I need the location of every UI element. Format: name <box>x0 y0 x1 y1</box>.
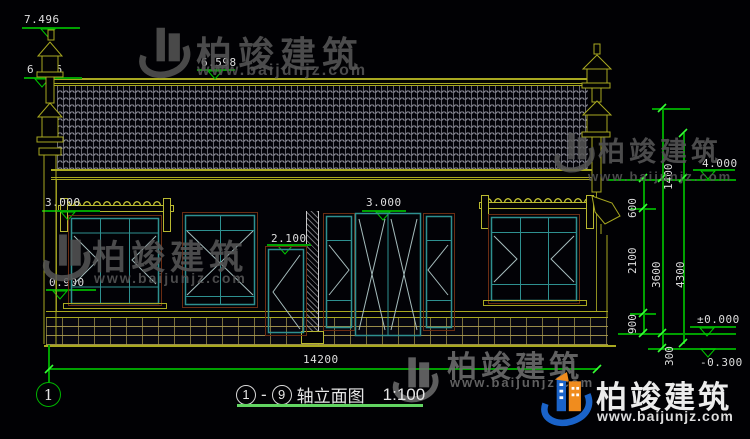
elevation-triangle <box>52 290 68 300</box>
watermark-text: 柏竣建筑 <box>598 130 722 169</box>
title-scale: 1:100 <box>383 385 426 405</box>
roof-tile-field <box>57 86 588 170</box>
axis-bubble-label: 1 <box>44 386 54 404</box>
title-separator: - <box>261 385 267 405</box>
title-axis-end: 9 <box>272 385 292 405</box>
elevation-triangle <box>375 211 391 221</box>
roof-eave-band <box>51 169 593 180</box>
elevation-gable-left: 6.156 <box>27 63 63 76</box>
elevation-triangle <box>699 327 715 337</box>
elevation-below-ground: -0.300 <box>700 356 743 369</box>
downpipe-shoe <box>301 331 324 344</box>
elevation-triangle <box>277 245 293 255</box>
axis-line-1 <box>48 345 50 383</box>
title-underline <box>237 404 423 407</box>
elevation-triangle <box>40 28 56 38</box>
axis-bubble-1: 1 <box>36 382 61 407</box>
dim-total-width: 14200 <box>303 353 339 366</box>
left-awning-end-plate <box>163 198 171 232</box>
cad-elevation-drawing: 7.496 6.156 6.598 3.000 0.900 2.100 3.00… <box>0 0 750 439</box>
right-dim-chain-inner <box>643 178 645 334</box>
right-awning-end-plate <box>481 195 489 229</box>
wainscot-top-band <box>46 311 608 318</box>
elevation-ground: ±0.000 <box>697 313 740 326</box>
elevation-entrance: 3.000 <box>366 196 402 209</box>
dim-900: 900 <box>626 314 639 334</box>
dim-300: 300 <box>663 346 676 366</box>
right-awning-end-plate <box>586 195 594 229</box>
right-awning-tiles <box>483 193 595 202</box>
dim-stub <box>652 108 690 110</box>
right-awning-board <box>479 202 599 209</box>
watermark-url: www.baijunjz.com <box>197 62 367 80</box>
dim-4300: 4300 <box>674 262 687 289</box>
elevation-triangle <box>60 211 76 221</box>
watermark-logo-icon <box>136 22 192 82</box>
rain-downpipe <box>306 211 319 332</box>
elevation-ridge-left: 7.496 <box>24 13 60 26</box>
brand-url: www.baijunjz.com <box>597 408 734 424</box>
watermark-logo-icon <box>40 226 92 288</box>
level-line-minus300 <box>648 348 736 350</box>
dim-600: 600 <box>626 198 639 218</box>
title-axis-start: 1 <box>236 385 256 405</box>
elevation-triangle <box>34 78 50 88</box>
dim-2100: 2100 <box>626 248 639 275</box>
brand-logo-icon <box>538 368 594 432</box>
watermark-url: www.baijunjz.com <box>94 270 247 286</box>
watermark-url: www.baijunjz.com <box>588 169 732 184</box>
elevation-mark-line <box>24 77 82 79</box>
brick-wainscot <box>46 318 608 345</box>
dim-3600: 3600 <box>650 262 663 289</box>
elevation-awning-left: 3.000 <box>45 196 81 209</box>
